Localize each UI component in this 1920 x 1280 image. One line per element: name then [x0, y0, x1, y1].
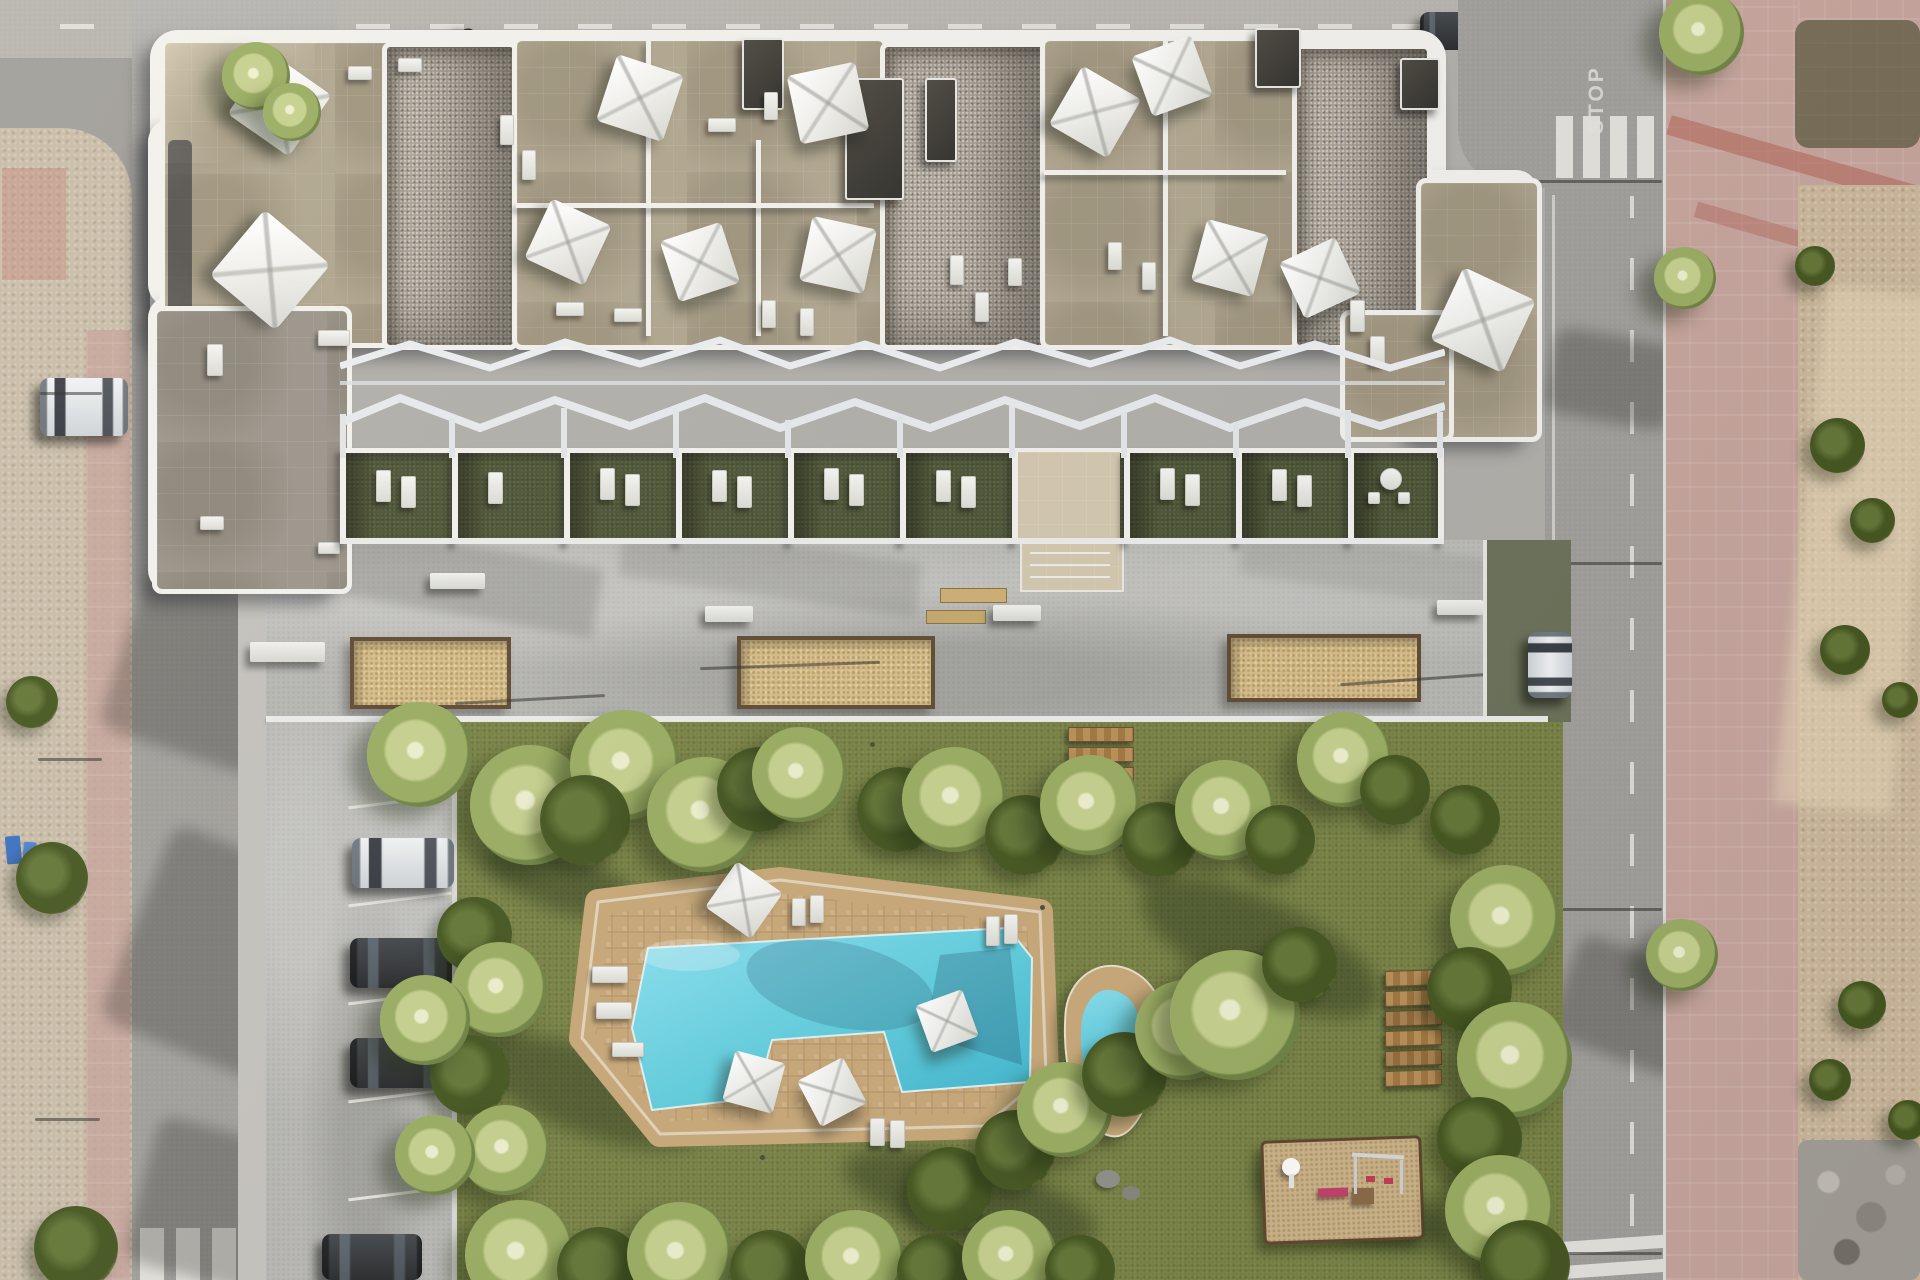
- garden-lounger: [712, 470, 727, 502]
- pergola-lattice: [340, 328, 1445, 464]
- step-line: [1030, 552, 1110, 554]
- rubble-pile: [1798, 1140, 1920, 1280]
- garden-table: [1380, 468, 1402, 490]
- garden-wall: [1012, 452, 1018, 544]
- shrub: [540, 775, 630, 865]
- swing-seat: [1366, 1176, 1375, 1182]
- lamp-shadow: [40, 392, 102, 395]
- garden-lounger: [1185, 474, 1200, 506]
- lamp-shadow: [38, 758, 102, 761]
- pergola-beam: [340, 398, 1445, 428]
- garden-wall: [452, 452, 458, 544]
- water-highlight: [640, 939, 740, 971]
- wooden-step: [1068, 727, 1134, 742]
- shrub: [34, 1206, 118, 1280]
- garden-lounger: [600, 468, 615, 500]
- rock: [1122, 1186, 1140, 1200]
- bench: [430, 573, 485, 589]
- garden-wall: [1236, 452, 1242, 544]
- sun-lounger: [596, 1002, 632, 1019]
- aerial-render: STOP: [0, 0, 1920, 1280]
- garden-lounger: [824, 468, 839, 500]
- wooden-lounger: [1385, 1069, 1443, 1087]
- palm-tree: [367, 702, 472, 807]
- entrance-walkway: [1014, 452, 1120, 544]
- wooden-lounger: [1385, 1049, 1443, 1067]
- sun-lounger: [810, 895, 824, 923]
- bench: [705, 606, 753, 622]
- curb-right: [1663, 0, 1666, 1280]
- garden-lounger: [936, 470, 951, 502]
- scrub: [1795, 246, 1835, 286]
- swing-seat: [1384, 1178, 1393, 1184]
- garden-lounger: [737, 476, 752, 508]
- gravel-roof: [382, 42, 518, 350]
- garden-lounger: [1160, 468, 1175, 500]
- palm-tree: [380, 975, 470, 1065]
- roof-access-box: [925, 78, 957, 162]
- garden-wall: [1348, 452, 1354, 544]
- sun-lounger: [986, 916, 1000, 946]
- garden-wall: [1124, 452, 1130, 544]
- bench: [1437, 600, 1483, 615]
- sun-lounger: [792, 898, 806, 926]
- roof-lounger: [1142, 262, 1156, 290]
- white-car-driveway: [1528, 632, 1572, 698]
- scrub: [1850, 498, 1895, 543]
- scrub-patch-top-right: [1795, 20, 1920, 148]
- garden-lounger: [1297, 475, 1312, 507]
- sun-lounger: [1004, 914, 1018, 944]
- garden-chair: [1398, 492, 1410, 504]
- playground-bench-pink: [1318, 1187, 1348, 1197]
- scrub: [1820, 625, 1870, 675]
- palm-tree: [395, 1115, 475, 1195]
- shrub: [1262, 927, 1337, 1002]
- garden-wall: [676, 452, 682, 544]
- sand-planter: [737, 636, 935, 709]
- parapet-wall: [1044, 170, 1286, 175]
- stone-step: [926, 610, 986, 624]
- sand-planter: [1227, 634, 1421, 702]
- garden-wall: [340, 452, 346, 544]
- sun-lounger: [592, 966, 628, 983]
- garden-lounger: [401, 476, 416, 508]
- garden-lounger: [376, 470, 391, 502]
- roof-lounger: [1008, 258, 1022, 286]
- roof-lounger: [764, 92, 778, 120]
- roof-vent: [200, 516, 224, 530]
- garden-lounger: [488, 472, 503, 504]
- stone-step: [940, 588, 1007, 603]
- pink-crossing-left: [2, 168, 66, 280]
- sand-planter: [350, 637, 511, 709]
- roof-lounger: [975, 292, 989, 322]
- sidewalk-right: [1663, 0, 1800, 1280]
- garden-lounger: [961, 476, 976, 508]
- scrub: [1888, 1100, 1920, 1140]
- garden-lounger: [849, 474, 864, 506]
- roof-access-box: [1255, 28, 1301, 88]
- stop-road-marking: STOP: [1585, 58, 1609, 134]
- sidewalk-left: [86, 330, 130, 1280]
- street-tree: [1654, 247, 1716, 309]
- sun-lounger: [612, 1042, 644, 1057]
- palm-tree: [752, 727, 847, 822]
- roof-umbrella: [799, 216, 877, 294]
- scrub: [1809, 1059, 1851, 1101]
- roof-lounger: [708, 118, 736, 132]
- scrub: [1810, 418, 1865, 473]
- roof-access-box: [1400, 58, 1440, 110]
- entrance-steps: [1020, 540, 1124, 592]
- shrub: [1245, 805, 1315, 875]
- step-line: [1030, 564, 1110, 566]
- lamp-shadow: [35, 1118, 100, 1121]
- shrub: [6, 676, 58, 728]
- roof-lounger: [1108, 242, 1122, 270]
- swing-leg: [1354, 1156, 1357, 1194]
- white-van-left: [40, 378, 128, 436]
- roof-umbrella: [786, 61, 869, 144]
- street-tree: [1646, 919, 1718, 991]
- roof-lounger: [556, 302, 584, 316]
- scrub: [1838, 981, 1886, 1029]
- roof-lounger: [762, 300, 776, 328]
- path-light: [760, 1155, 765, 1160]
- driveway-curb: [1483, 540, 1487, 722]
- bench: [993, 605, 1041, 621]
- shrub: [16, 842, 88, 914]
- pergola-beam: [340, 340, 1445, 368]
- shrub: [1430, 785, 1500, 855]
- garden-wall: [564, 452, 570, 544]
- roof-vent: [318, 542, 340, 554]
- parked-car-dark: [322, 1234, 422, 1280]
- gravel-roof: [880, 42, 1050, 350]
- parapet-wall: [756, 140, 761, 336]
- roof-lounger: [207, 344, 223, 376]
- shrub: [1360, 755, 1430, 825]
- parked-car-white: [352, 838, 454, 888]
- roof-lounger: [950, 255, 964, 285]
- roof-vent: [348, 66, 372, 80]
- roof-lounger: [614, 308, 642, 322]
- scrub: [1882, 682, 1918, 718]
- roof-vent: [398, 58, 422, 72]
- street-tree: [263, 83, 321, 141]
- playground-spring-toy-stem: [1289, 1174, 1294, 1188]
- bench: [250, 642, 325, 662]
- garden-wall: [788, 452, 794, 544]
- sun-lounger: [870, 1118, 885, 1146]
- garden-curb: [340, 538, 1444, 544]
- garden-wall: [1438, 452, 1444, 544]
- garden-lounger: [625, 474, 640, 506]
- path-light: [1040, 905, 1045, 910]
- road-right-widening: [1458, 0, 1558, 188]
- roof-lounger: [522, 150, 536, 180]
- sun-lounger: [890, 1120, 905, 1148]
- wooden-lounger: [1385, 1029, 1443, 1047]
- path-light: [870, 742, 875, 747]
- swing-leg: [1400, 1160, 1403, 1194]
- step-line: [1030, 576, 1110, 578]
- roof-lounger: [500, 115, 514, 145]
- garden-wall: [900, 452, 906, 544]
- rock: [1096, 1170, 1120, 1188]
- garden-lounger: [1272, 469, 1287, 501]
- garden-chair: [1368, 492, 1380, 504]
